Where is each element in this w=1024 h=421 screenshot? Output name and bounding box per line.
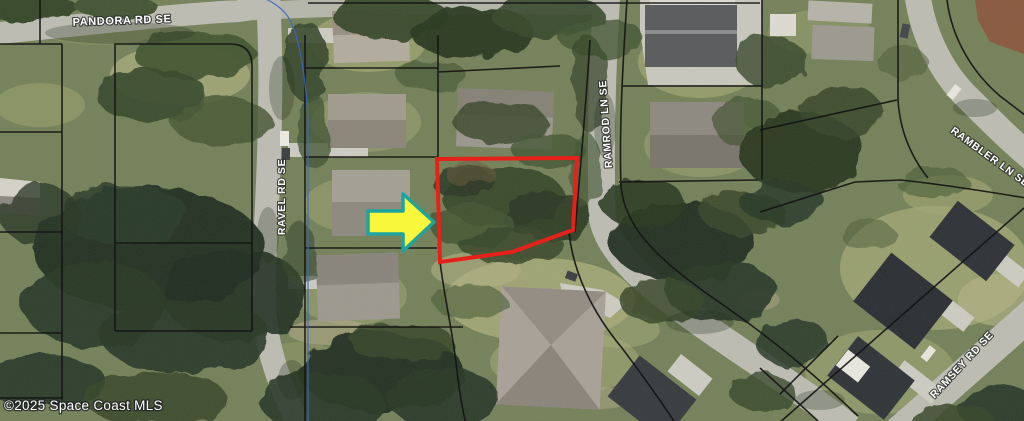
copyright-text: ©2025 Space Coast MLS xyxy=(4,398,163,413)
map-viewport: PANDORA RD SE RAVEL RD SE RAMROD LN SE R… xyxy=(0,0,1024,421)
street-label-ravel: RAVEL RD SE xyxy=(276,159,288,235)
photo-grain xyxy=(0,0,1024,421)
aerial-map: PANDORA RD SE RAVEL RD SE RAMROD LN SE R… xyxy=(0,0,1024,421)
